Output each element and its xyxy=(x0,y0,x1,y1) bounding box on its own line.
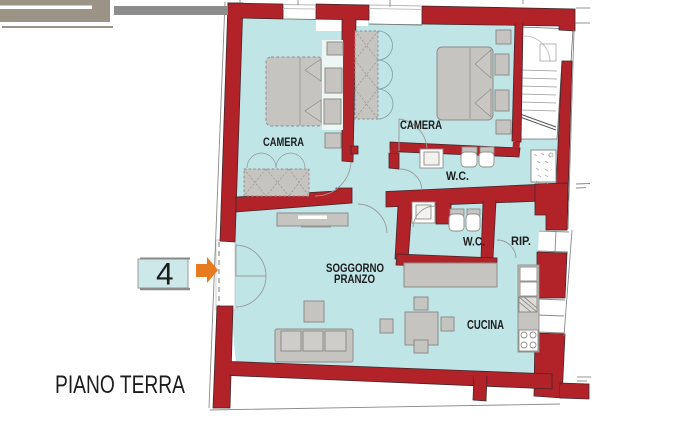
svg-text:CAMERA: CAMERA xyxy=(263,135,304,149)
svg-text:PRANZO: PRANZO xyxy=(334,274,375,286)
svg-text:CAMERA: CAMERA xyxy=(400,118,442,132)
svg-text:PIANO TERRA: PIANO TERRA xyxy=(55,371,185,399)
svg-text:W.C.: W.C. xyxy=(463,237,485,249)
svg-text:W.C.: W.C. xyxy=(446,171,469,183)
svg-text:RIP.: RIP. xyxy=(511,234,531,248)
svg-text:4: 4 xyxy=(156,256,174,292)
svg-text:CUCINA: CUCINA xyxy=(467,318,504,332)
